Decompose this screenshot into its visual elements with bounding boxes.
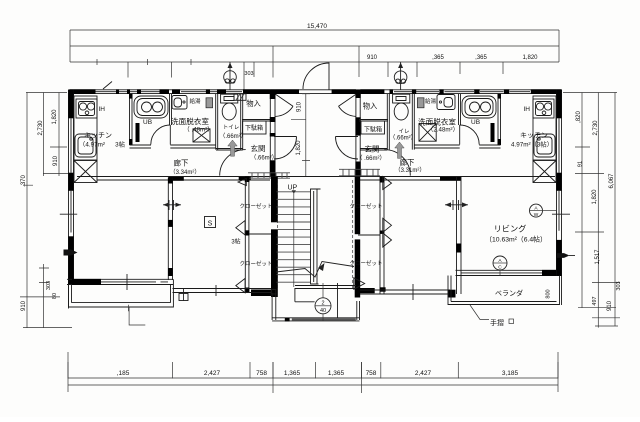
svg-text:1,820: 1,820: [296, 140, 302, 156]
svg-text:玄関: 玄関: [365, 144, 380, 154]
svg-text:910: 910: [607, 300, 613, 311]
svg-text:クローゼット: クローゼット: [239, 260, 272, 268]
svg-text:洗面脱衣室: 洗面脱衣室: [418, 117, 456, 127]
svg-text:,365: ,365: [432, 55, 444, 61]
svg-text:.370: .370: [21, 175, 27, 187]
svg-text:（10.63m²（6.4帖）: （10.63m²（6.4帖）: [485, 235, 547, 244]
svg-text:1,517: 1,517: [595, 249, 601, 265]
svg-text:303: 303: [244, 71, 253, 77]
svg-text:（3.31m²）: （3.31m²）: [395, 167, 426, 174]
svg-text:91: 91: [578, 161, 584, 167]
svg-text:80: 80: [52, 293, 58, 299]
svg-text:2,730: 2,730: [593, 120, 599, 136]
svg-text:（4.97m²: （4.97m²: [79, 142, 105, 149]
svg-text:,365: ,365: [475, 55, 487, 61]
svg-text:758: 758: [366, 370, 377, 377]
svg-text:（ .66m²）: （ .66m²）: [356, 155, 385, 162]
svg-text:,820: ,820: [576, 111, 582, 123]
svg-text:（3.34m²）: （3.34m²）: [170, 169, 201, 176]
svg-text:物入: 物入: [363, 102, 378, 111]
svg-text:クローゼット: クローゼット: [349, 202, 382, 210]
svg-text:S: S: [208, 221, 213, 228]
svg-text:UP: UP: [288, 185, 298, 192]
svg-text:IH: IH: [99, 106, 106, 113]
svg-text:2,427: 2,427: [415, 370, 432, 377]
svg-text:758: 758: [256, 370, 267, 377]
svg-text:（.66m²）: （.66m²）: [389, 135, 416, 142]
svg-text:クローゼット: クローゼット: [239, 202, 272, 210]
svg-text:303: 303: [46, 281, 52, 290]
svg-text:IH: IH: [524, 106, 531, 113]
svg-text:キッチン: キッチン: [84, 132, 112, 140]
svg-text:3帖: 3帖: [231, 238, 240, 246]
svg-text:15,470: 15,470: [307, 23, 327, 30]
svg-text:ベランダ: ベランダ: [495, 289, 523, 298]
svg-text:2,730: 2,730: [38, 120, 44, 136]
svg-text:6,067: 6,067: [609, 173, 615, 189]
svg-text:4.97m²（3帖）: 4.97m²（3帖）: [511, 140, 553, 149]
svg-text:手摺: 手摺: [490, 318, 504, 327]
svg-text:洗面脱衣室: 洗面脱衣室: [171, 116, 209, 126]
svg-text:クローゼット: クローゼット: [349, 259, 382, 267]
svg-text:給湯: 給湯: [190, 97, 202, 105]
svg-text:（2.48m²）: （2.48m²）: [427, 127, 459, 134]
svg-text:トイレ: トイレ: [223, 125, 240, 131]
svg-text:3,185: 3,185: [502, 370, 519, 377]
svg-text:給湯: 給湯: [425, 97, 437, 105]
svg-text:910: 910: [21, 300, 27, 311]
svg-text:下駄箱: 下駄箱: [364, 126, 382, 134]
svg-text:497: 497: [592, 296, 598, 305]
svg-text:下駄箱: 下駄箱: [245, 124, 263, 132]
svg-text:800: 800: [546, 289, 552, 298]
svg-text:キッチン: キッチン: [520, 132, 548, 140]
svg-text:910: 910: [297, 101, 303, 112]
svg-text:イレ: イレ: [398, 129, 409, 135]
svg-text:W: W: [534, 212, 539, 218]
svg-text:3帖: 3帖: [115, 140, 126, 149]
svg-text:1,365: 1,365: [328, 370, 345, 377]
svg-text:廊下: 廊下: [400, 158, 415, 167]
svg-text:910: 910: [53, 155, 59, 166]
svg-text:,185: ,185: [117, 370, 130, 377]
svg-text:C: C: [498, 265, 502, 271]
svg-text:物入: 物入: [246, 99, 261, 108]
svg-text:2,427: 2,427: [204, 370, 221, 377]
svg-text:リビング: リビング: [494, 224, 527, 234]
svg-text:1,365: 1,365: [284, 370, 301, 377]
svg-text:40: 40: [320, 308, 326, 314]
svg-text:（.66m²）: （.66m²）: [250, 155, 277, 162]
svg-text:2: 2: [321, 301, 324, 307]
svg-text:910: 910: [367, 55, 378, 61]
svg-text:1,820: 1,820: [52, 109, 58, 125]
svg-text:303: 303: [616, 281, 622, 290]
svg-text:1,820: 1,820: [522, 55, 538, 61]
svg-text:廊下: 廊下: [174, 159, 189, 168]
svg-text:1,820: 1,820: [592, 189, 598, 205]
svg-text:玄関: 玄関: [251, 143, 266, 153]
svg-text:UB: UB: [471, 119, 480, 126]
svg-text:UB: UB: [143, 119, 152, 126]
